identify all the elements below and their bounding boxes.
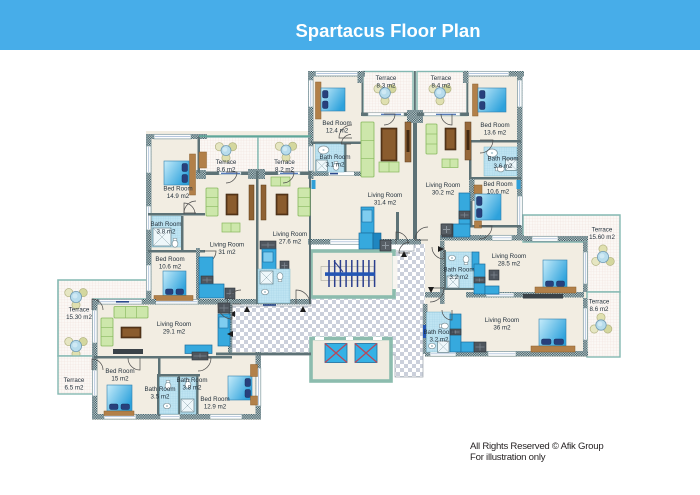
svg-text:All Rights Reserved © Afik Gro: All Rights Reserved © Afik Group xyxy=(470,441,603,452)
svg-text:Bed Room10.6 m2: Bed Room10.6 m2 xyxy=(155,256,184,270)
svg-text:Terrace8.4 m2: Terrace8.4 m2 xyxy=(431,75,452,89)
svg-text:Bed Room14.9 m2: Bed Room14.9 m2 xyxy=(163,186,192,200)
svg-text:Terrace8.6 m2: Terrace8.6 m2 xyxy=(589,299,610,313)
svg-text:For illustration only: For illustration only xyxy=(470,452,546,463)
svg-text:Bed Room13.6 m2: Bed Room13.6 m2 xyxy=(480,122,509,136)
svg-text:Bed Room10.6 m2: Bed Room10.6 m2 xyxy=(483,181,512,195)
svg-text:Bed Room12.4 m2: Bed Room12.4 m2 xyxy=(322,120,351,134)
svg-text:Bed Room12.9 m2: Bed Room12.9 m2 xyxy=(200,396,229,410)
svg-text:Terrace6.5 m2: Terrace6.5 m2 xyxy=(64,377,85,391)
svg-text:Terrace15.60 m2: Terrace15.60 m2 xyxy=(589,227,615,241)
svg-text:Terrace8.2 m2: Terrace8.2 m2 xyxy=(274,159,295,173)
svg-text:Terrace8.3 m2: Terrace8.3 m2 xyxy=(376,75,397,89)
svg-text:Terrace15.30 m2: Terrace15.30 m2 xyxy=(66,307,92,321)
svg-text:Terrace8.6 m2: Terrace8.6 m2 xyxy=(216,159,237,173)
svg-text:Spartacus Floor Plan: Spartacus Floor Plan xyxy=(295,20,480,41)
